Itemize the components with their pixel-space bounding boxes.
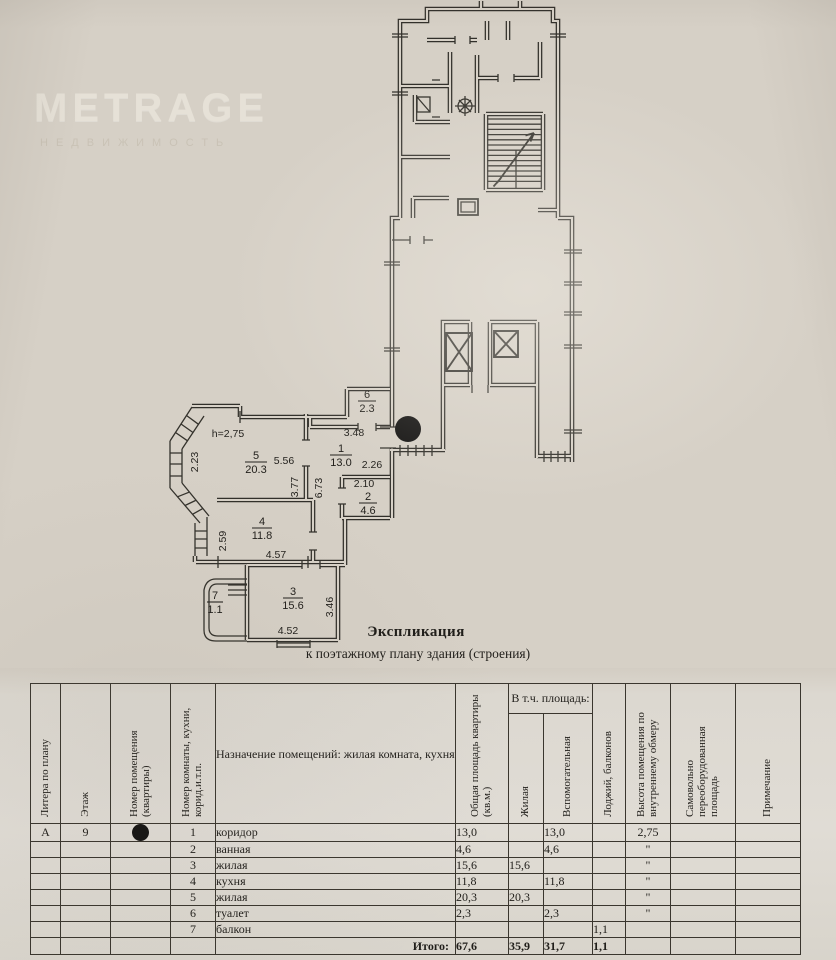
cell-aux	[544, 858, 593, 874]
wall-hatches	[400, 445, 565, 462]
cell-living	[509, 906, 544, 922]
cell-reequipped	[671, 922, 736, 938]
header-apartment-number: Номер помещения (квартиры)	[111, 684, 171, 824]
cell-litera	[31, 922, 61, 938]
cell-total: 4,6	[456, 842, 509, 858]
total-living-value: 35,9	[509, 938, 544, 955]
cell-height: "	[626, 842, 671, 858]
cell-floor	[61, 906, 111, 922]
cell-room-name: кухня	[216, 874, 456, 890]
room2-area: 4.6	[360, 505, 375, 517]
floor-plan: 1 13.0 2 4.6 3 15.6 4 11.8 5 20.3 6 2.3 …	[0, 0, 836, 680]
cell-living: 15,6	[509, 858, 544, 874]
cell-room-number: 3	[171, 858, 216, 874]
header-height: Высота помещения по внутреннему обмеру	[626, 684, 671, 824]
staircase	[487, 119, 542, 188]
room-labels: 1 13.0 2 4.6 3 15.6 4 11.8 5 20.3 6 2.3 …	[207, 389, 377, 616]
room1-number: 1	[338, 443, 344, 455]
dim-6-73: 6.73	[313, 478, 325, 499]
cell-floor	[61, 858, 111, 874]
cell-total: 11,8	[456, 874, 509, 890]
cell-loggia	[593, 906, 626, 922]
entrance-marker	[395, 416, 421, 442]
header-room-number: Номер комнаты, кухни, корид.и.т.п.	[171, 684, 216, 824]
plan-walls	[192, 1, 572, 640]
elevator-shafts	[446, 331, 518, 371]
explication-subtitle: к поэтажному плану здания (строения)	[226, 646, 610, 662]
header-row-group: Литера по плану Этаж Номер помещения (кв…	[31, 684, 801, 714]
room4-area: 11.8	[252, 530, 273, 542]
wall-junction-ticks	[384, 34, 582, 433]
cell-litera	[31, 890, 61, 906]
cell-aux	[544, 890, 593, 906]
header-auxiliary-area: Вспомогательная	[544, 714, 593, 824]
cell-litera	[31, 858, 61, 874]
room1-area: 13.0	[330, 457, 351, 469]
room2-number: 2	[365, 491, 371, 503]
cell-living	[509, 922, 544, 938]
cell-note	[736, 922, 801, 938]
cell-note	[736, 874, 801, 890]
cell-room-name: балкон	[216, 922, 456, 938]
cell-reequipped	[671, 824, 736, 842]
bay-window-bands	[170, 407, 209, 556]
cell-room-number: 5	[171, 890, 216, 906]
cell-total: 13,0	[456, 824, 509, 842]
cell-room-number: 2	[171, 842, 216, 858]
cell-total: 2,3	[456, 906, 509, 922]
cell-living	[509, 824, 544, 842]
room4-number: 4	[259, 516, 265, 528]
room6-number: 6	[364, 389, 370, 401]
cell-loggia	[593, 890, 626, 906]
dim-4-57: 4.57	[266, 549, 287, 561]
room3-number: 3	[290, 586, 296, 598]
cell-floor	[61, 874, 111, 890]
ceiling-height-label: h=2,75	[212, 428, 245, 440]
cell-apartment-number	[111, 874, 171, 890]
cell-aux: 4,6	[544, 842, 593, 858]
header-incl-area-group: В т.ч. площадь:	[509, 684, 593, 714]
cell-apartment-number	[111, 890, 171, 906]
cell-height: "	[626, 906, 671, 922]
total-area-value: 67,6	[456, 938, 509, 955]
cell-floor	[61, 922, 111, 938]
cell-height: "	[626, 858, 671, 874]
cell-aux: 11,8	[544, 874, 593, 890]
duct-box	[417, 97, 430, 112]
cell-apartment-number	[111, 906, 171, 922]
table-row: 5 жилая 20,3 20,3 "	[31, 890, 801, 906]
cell-room-name: ванная	[216, 842, 456, 858]
dim-5-56: 5.56	[274, 455, 295, 467]
total-row: Итого: 67,6 35,9 31,7 1,1	[31, 938, 801, 955]
cell-aux: 2,3	[544, 906, 593, 922]
total-aux-value: 31,7	[544, 938, 593, 955]
room5-area: 20.3	[245, 464, 266, 476]
table-row: 3 жилая 15,6 15,6 "	[31, 858, 801, 874]
cell-apartment-number	[111, 824, 171, 842]
cell-aux: 13,0	[544, 824, 593, 842]
cell-floor	[61, 890, 111, 906]
cell-note	[736, 890, 801, 906]
explication-title: Экспликация	[256, 624, 576, 641]
cell-height: 2,75	[626, 824, 671, 842]
total-label: Итого:	[216, 938, 456, 955]
dim-2-59: 2.59	[217, 531, 229, 552]
cell-room-number: 7	[171, 922, 216, 938]
table-row: 6 туалет 2,3 2,3 "	[31, 906, 801, 922]
cell-room-name: жилая	[216, 858, 456, 874]
cell-room-name: коридор	[216, 824, 456, 842]
cell-apartment-number	[111, 922, 171, 938]
cell-note	[736, 858, 801, 874]
cell-room-number: 4	[171, 874, 216, 890]
cell-room-name: жилая	[216, 890, 456, 906]
cell-total: 15,6	[456, 858, 509, 874]
header-total-area: Общая площадь квартиры (кв.м.)	[456, 684, 509, 824]
vent-shaft-symbol	[455, 96, 475, 116]
cell-note	[736, 842, 801, 858]
room7-number: 7	[212, 590, 218, 602]
room6-area: 2.3	[359, 403, 374, 415]
header-living-area: Жилая	[509, 714, 544, 824]
cell-loggia	[593, 858, 626, 874]
room5-number: 5	[253, 450, 259, 462]
stair-landing-box	[458, 199, 478, 215]
header-purpose: Назначение помещений: жилая комната, кух…	[216, 684, 456, 824]
cell-loggia	[593, 824, 626, 842]
header-note: Примечание	[736, 684, 801, 824]
dim-2-26: 2.26	[362, 459, 383, 471]
cell-height	[626, 922, 671, 938]
cell-total: 20,3	[456, 890, 509, 906]
dim-3-77: 3.77	[289, 477, 301, 498]
dim-3-46: 3.46	[324, 597, 336, 618]
cell-reequipped	[671, 890, 736, 906]
header-reequipped: Самовольно переоборудованная площадь	[671, 684, 736, 824]
table-row: 7 балкон 1,1	[31, 922, 801, 938]
cell-note	[736, 824, 801, 842]
cell-litera	[31, 874, 61, 890]
table-row: 4 кухня 11,8 11,8 "	[31, 874, 801, 890]
table-row: 2 ванная 4,6 4,6 "	[31, 842, 801, 858]
cell-reequipped	[671, 906, 736, 922]
cell-total	[456, 922, 509, 938]
cell-apartment-number	[111, 858, 171, 874]
cell-litera	[31, 842, 61, 858]
cell-reequipped	[671, 874, 736, 890]
cell-litera	[31, 906, 61, 922]
apartment-number-marker	[132, 824, 149, 841]
cell-floor: 9	[61, 824, 111, 842]
room3-area: 15.6	[282, 600, 303, 612]
total-loggia-value: 1,1	[593, 938, 626, 955]
cell-room-number: 1	[171, 824, 216, 842]
cell-loggia: 1,1	[593, 922, 626, 938]
header-loggia: Лоджий, балконов	[593, 684, 626, 824]
cell-living	[509, 842, 544, 858]
cell-reequipped	[671, 858, 736, 874]
cell-loggia	[593, 874, 626, 890]
cell-apartment-number	[111, 842, 171, 858]
cell-room-number: 6	[171, 906, 216, 922]
cell-height: "	[626, 890, 671, 906]
room7-area: 1.1	[207, 604, 222, 616]
cell-reequipped	[671, 842, 736, 858]
dim-2-23: 2.23	[189, 452, 201, 473]
header-floor: Этаж	[61, 684, 111, 824]
cell-floor	[61, 842, 111, 858]
cell-note	[736, 906, 801, 922]
table-row: А 9 1 коридор 13,0 13,0 2,75	[31, 824, 801, 842]
cell-litera: А	[31, 824, 61, 842]
dim-2-10: 2.10	[354, 478, 375, 490]
explication-table: Литера по плану Этаж Номер помещения (кв…	[30, 683, 801, 955]
cell-loggia	[593, 842, 626, 858]
cell-room-name: туалет	[216, 906, 456, 922]
dim-3-48: 3.48	[344, 427, 365, 439]
cell-aux	[544, 922, 593, 938]
cell-living: 20,3	[509, 890, 544, 906]
header-litera: Литера по плану	[31, 684, 61, 824]
cell-living	[509, 874, 544, 890]
cell-height: "	[626, 874, 671, 890]
scanned-floorplan-document: { "watermark": { "brand": "METRAGE", "su…	[0, 0, 836, 960]
